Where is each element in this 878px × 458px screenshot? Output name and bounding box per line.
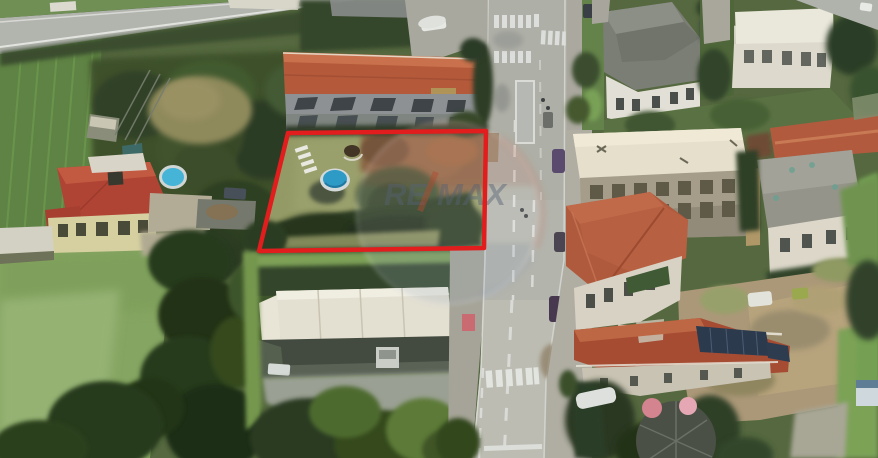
svg-text:MAX: MAX [437, 177, 508, 212]
